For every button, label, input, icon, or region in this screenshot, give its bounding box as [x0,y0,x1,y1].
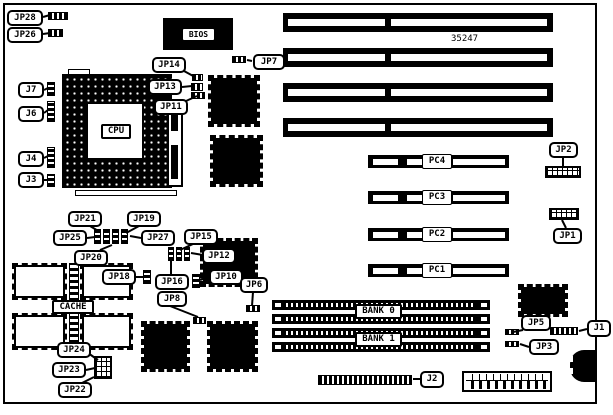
label-jp12: JP12 [202,248,236,264]
label-jp13: JP13 [148,79,182,95]
label-jp23: JP23 [52,362,86,378]
motherboard-jumper-diagram: 35247 PC4PC3PC2PC1JP28JP26J7J6J4J3JP14JP… [0,0,613,415]
label-jp25: JP25 [53,230,87,246]
jumper-cluster-b1 [168,247,174,261]
label-jp2: JP2 [549,142,578,158]
part-number-text: 35247 [451,35,478,44]
chip-body [521,287,565,314]
label-cpu: CPU [101,124,131,139]
pc-slot-contact-strip [453,159,505,165]
jumper-cluster-a3 [112,229,119,244]
pc-slot-contact-strip [407,159,423,165]
voltage-regulator-bar [171,111,178,179]
power-connector-pins [466,374,548,381]
qfp-chip-6 [518,284,568,317]
label-jp3: JP3 [529,339,559,355]
simm-latch [274,302,282,308]
cache-chip-1 [12,263,67,300]
jp14-jumper [192,74,203,81]
label-j1: J1 [587,320,611,337]
pc-slot-contact-strip [407,268,423,274]
label-jp28: JP28 [7,10,43,26]
pc-slot-contact-strip [407,232,423,238]
simm-latch [274,316,282,322]
label-cache: CACHE [52,300,94,314]
socket-notch [68,69,90,75]
label-j2: J2 [420,371,444,388]
simm-latch [480,344,488,350]
chip-body [14,265,65,298]
label-bank1: BANK 1 [355,332,402,347]
label-jp24: JP24 [57,342,91,358]
label-jp27: JP27 [141,230,175,246]
jp11-jumper [191,92,205,99]
pc-slot-contact-strip [453,268,505,274]
label-jp8: JP8 [157,291,187,307]
keyboard-connector-notch [568,356,573,362]
label-j4: J4 [18,151,44,167]
qfp-chip-1 [208,75,260,127]
jp28-connector [48,12,68,20]
chip-body [144,324,187,369]
keyboard-connector [570,350,597,382]
label-jp14: JP14 [152,57,186,73]
label-jp19: JP19 [127,211,161,227]
label-j6: J6 [18,106,44,122]
jumper-cluster-b3 [184,247,190,261]
chip-body [211,78,257,124]
isa-slot-contact-strip [288,54,385,61]
simm-latch [480,302,488,308]
chip-body [210,324,255,369]
j4-connector [47,147,55,168]
label-jp16: JP16 [155,274,189,290]
jumper-cluster-b2 [176,247,182,261]
isa-slot-contact-strip [391,124,547,131]
pc-slot-contact-strip [373,195,398,201]
label-jp6: JP6 [240,277,268,293]
pc-slot-contact-strip [453,195,505,201]
j6-connector [47,101,55,122]
pc-slot-contact-strip [453,232,505,238]
label-jp22: JP22 [58,382,92,398]
isa-slot-contact-strip [288,19,385,26]
label-jp1: JP1 [553,228,582,244]
label-jp26: JP26 [7,27,43,43]
jp13-jumper [191,83,203,91]
j7-connector [47,82,55,96]
voltage-regulator-gap [171,131,178,145]
power-connector [462,371,552,392]
label-bios: BIOS [182,28,215,41]
jp22-jp23-jumper-block [94,356,112,379]
jp18-jumper [143,270,151,284]
pc-slot-contact-strip [373,159,398,165]
jumper-cluster-a2 [103,229,110,244]
label-j7: J7 [18,82,44,98]
jp1-connector [549,208,579,220]
qfp-chip-4 [141,321,190,372]
jp5-jumper [505,329,519,335]
pc-slot-label: PC1 [422,263,452,278]
j2-connector [318,375,412,385]
pc-slot-label: PC4 [422,154,452,169]
simm-latch [274,344,282,350]
label-jp10: JP10 [209,269,243,285]
isa-slot-contact-strip [391,89,547,96]
pc-slot-label: PC3 [422,190,452,205]
jp26-connector [48,29,63,37]
jp7-connector [232,56,246,63]
jp3-jumper [505,341,519,347]
jumper-cluster-a4 [121,229,128,244]
keyboard-connector-notch [568,368,573,374]
j3-connector [47,174,55,187]
qfp-chip-5 [207,321,258,372]
chip-body [213,138,260,184]
label-jp5: JP5 [521,315,551,331]
socket-lever [75,190,177,196]
simm-latch [480,330,488,336]
label-jp18: JP18 [102,269,136,285]
jp8-jumper [193,317,206,324]
jp2-connector [545,166,581,178]
qfp-chip-2 [210,135,263,187]
jp6-jumper [246,305,260,312]
label-jp15: JP15 [184,229,218,245]
pc-slot-contact-strip [407,195,423,201]
label-jp20: JP20 [74,250,108,266]
pc-slot-contact-strip [373,232,398,238]
isa-slot-contact-strip [391,54,547,61]
isa-slot-contact-strip [288,89,385,96]
label-jp11: JP11 [154,99,188,115]
pc-slot-label: PC2 [422,227,452,242]
label-j3: J3 [18,172,44,188]
isa-slot-contact-strip [288,124,385,131]
label-jp7: JP7 [253,54,285,70]
jp10-jumper [192,274,200,288]
label-jp21: JP21 [68,211,102,227]
jumper-cluster-a1 [94,229,101,244]
isa-slot-contact-strip [391,19,547,26]
label-bank0: BANK 0 [355,304,402,319]
simm-latch [480,316,488,322]
j1-connector [550,327,578,335]
power-connector-teeth [466,381,548,389]
simm-latch [274,330,282,336]
pc-slot-contact-strip [373,268,398,274]
